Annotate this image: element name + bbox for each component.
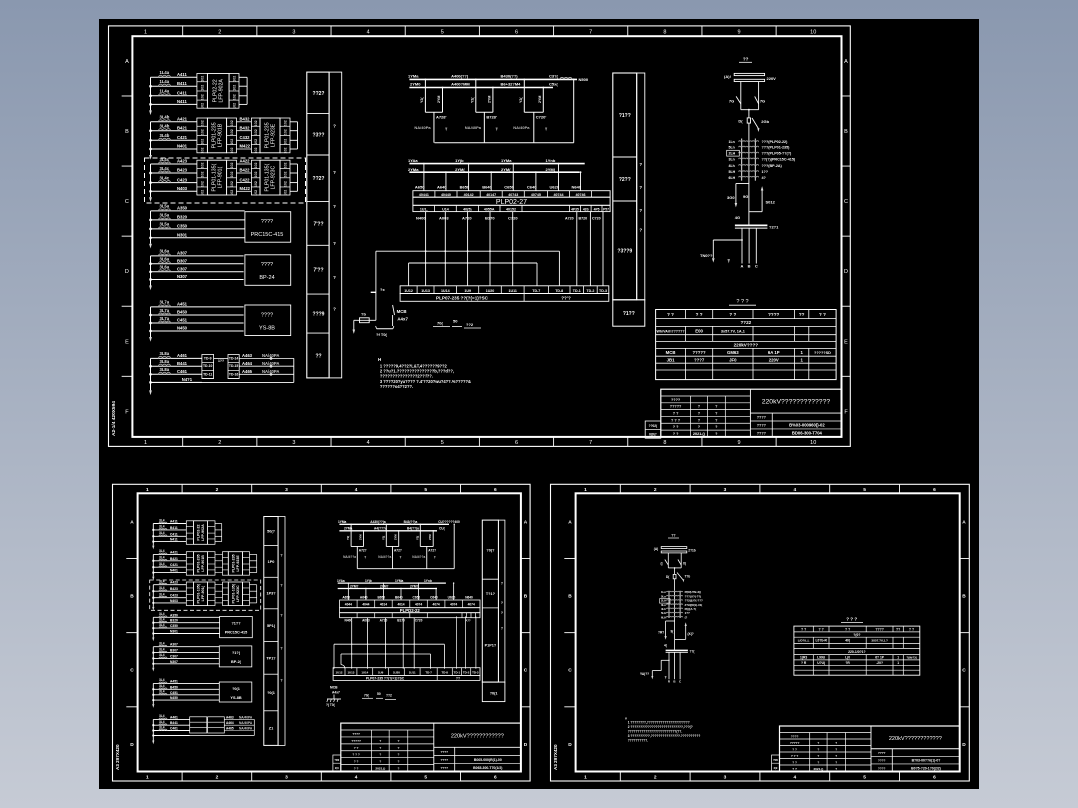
svg-text:102: 102 <box>230 129 234 135</box>
svg-text:TD-11: TD-11 <box>203 372 212 376</box>
svg-text:B430(??): B430(??) <box>501 74 519 79</box>
svg-text:N400: N400 <box>345 619 353 623</box>
svg-text:TD-8: TD-8 <box>555 289 563 293</box>
svg-text:LFP-923E: LFP-923E <box>236 555 240 572</box>
svg-text:A728': A728' <box>436 114 447 119</box>
svg-text:4: 4 <box>355 774 358 780</box>
svg-text:?: ? <box>280 679 282 683</box>
svg-text:E: E <box>844 339 848 345</box>
svg-text:1U20: 1U20 <box>393 671 400 675</box>
svg-text:? ?: ? ? <box>729 312 736 317</box>
svg-text:1U11: 1U11 <box>409 671 416 675</box>
svg-text:P1P1?: P1P1? <box>485 644 497 648</box>
svg-text:B411: B411 <box>170 526 178 530</box>
svg-text:CU(: CU( <box>439 526 446 530</box>
svg-text:43S: 43S <box>583 207 590 211</box>
svg-text:1(R3: 1(R3 <box>800 656 807 660</box>
svg-text:50(?: 50(? <box>267 530 275 534</box>
svg-text:3x57.7V, 1A,1: 3x57.7V, 1A,1 <box>721 329 745 333</box>
svg-text:TD-15: TD-15 <box>229 364 239 368</box>
svg-text:? ?: ? ? <box>792 767 797 771</box>
svg-text:6: 6 <box>515 29 518 35</box>
svg-text:2(9: 2(9 <box>335 766 339 770</box>
svg-text:1Yjb: 1Yjb <box>365 579 372 583</box>
svg-text:N400: N400 <box>416 216 426 221</box>
svg-text:BP-24: BP-24 <box>259 275 274 281</box>
svg-text:1L4a: 1L4a <box>160 89 170 94</box>
svg-text:1YMa: 1YMa <box>338 520 347 524</box>
svg-text:TD-7: TD-7 <box>425 671 432 675</box>
svg-text:? ?: ? ? <box>354 746 359 750</box>
svg-text:?0(1: ?0(1 <box>232 687 240 691</box>
svg-text:P57: P57 <box>603 207 609 211</box>
svg-text:A400(??): A400(??) <box>451 74 469 79</box>
svg-text:A: A <box>524 519 528 525</box>
svg-text:L0?b-R: L0?b-R <box>815 639 827 643</box>
svg-text:?: ? <box>639 185 642 190</box>
svg-text:A422: A422 <box>240 159 251 164</box>
svg-text:102: 102 <box>233 85 237 91</box>
svg-text:40743: 40743 <box>508 193 518 197</box>
svg-text:?: ? <box>639 227 642 232</box>
svg-text:A4x7: A4x7 <box>397 317 408 322</box>
svg-text:? ?: ? ? <box>801 627 806 631</box>
svg-text:PLP01-135(: PLP01-135( <box>197 583 201 603</box>
svg-text:?3??9: ?3??9 <box>617 248 632 254</box>
svg-text:4P5: 4P5 <box>594 207 600 211</box>
svg-text:102: 102 <box>284 120 288 126</box>
svg-text:1P0: 1P0 <box>268 560 275 564</box>
svg-text:B450: B450 <box>170 685 178 689</box>
svg-text:B: B <box>844 129 848 135</box>
svg-text:1U9: 1U9 <box>378 671 384 675</box>
svg-text:E00: E00 <box>695 328 703 333</box>
svg-text:1??: 1?? <box>218 359 224 363</box>
svg-text:A463: A463 <box>242 353 253 358</box>
svg-text:2YM: 2YM <box>359 534 363 540</box>
svg-text:3L4b: 3L4b <box>160 115 170 120</box>
svg-text:4014: 4014 <box>397 603 404 607</box>
svg-text:?: ? <box>379 753 381 757</box>
svg-text:??02(: ??02( <box>649 424 658 428</box>
svg-text:?: ? <box>333 170 336 175</box>
svg-text:1U12: 1U12 <box>404 289 413 293</box>
svg-text:1Ynb: 1Ynb <box>546 158 556 163</box>
svg-text:C650: C650 <box>504 184 514 189</box>
svg-text:A003: A003 <box>362 619 370 623</box>
svg-text:??2: ??2 <box>466 322 474 327</box>
svg-text:TD-9: TD-9 <box>204 356 212 360</box>
svg-text:5: 5 <box>863 774 866 780</box>
svg-text:?(9b?3(: ?(9b?3( <box>906 656 916 660</box>
svg-text:1: 1 <box>584 774 587 780</box>
svg-text:????: ???? <box>261 313 273 319</box>
svg-text:2: 2 <box>654 487 657 493</box>
svg-text:N640: N640 <box>572 184 582 189</box>
svg-text:2YM(: 2YM( <box>546 167 556 172</box>
svg-text:102: 102 <box>284 172 288 178</box>
svg-text:LFP-901B: LFP-901B <box>201 555 205 572</box>
svg-text:102: 102 <box>230 139 234 145</box>
svg-text:A3 297X420: A3 297X420 <box>553 744 558 770</box>
svg-text:A350: A350 <box>177 206 188 211</box>
svg-text:?: ? <box>379 746 381 750</box>
svg-text:220kV????????????: 220kV???????????? <box>451 734 504 740</box>
svg-text:A: A <box>741 264 744 269</box>
svg-text:N411: N411 <box>170 538 178 542</box>
svg-text:1: 1 <box>146 487 149 493</box>
svg-text:JB1: JB1 <box>667 357 675 362</box>
svg-text:? ? ?: ? ? ? <box>736 299 748 305</box>
svg-text:MCB: MCB <box>330 686 338 690</box>
svg-text:6: 6 <box>933 774 936 780</box>
svg-text:??'?: ??'? <box>561 296 571 301</box>
svg-text:B?03-00??6(1)-0?: B?03-00??6(1)-0? <box>912 759 941 763</box>
svg-text:C3?(: C3?( <box>549 74 559 79</box>
svg-text:3L4c: 3L4c <box>160 175 170 180</box>
svg-text:PLP01-235: PLP01-235 <box>197 554 201 572</box>
svg-text:3L6a: 3L6a <box>160 265 170 270</box>
svg-text:N403: N403 <box>177 186 188 191</box>
svg-text:TD-10: TD-10 <box>203 364 213 368</box>
svg-text:0(9)?: 0(9)? <box>649 433 657 437</box>
svg-text:220V: 220V <box>769 357 779 362</box>
svg-text:1U1,: 1U1, <box>420 207 428 211</box>
svg-text:B: B <box>130 594 134 600</box>
svg-text:N450: N450 <box>170 696 178 700</box>
svg-text:A451: A451 <box>170 679 178 683</box>
svg-text:3L6a: 3L6a <box>160 257 170 262</box>
svg-text:3L4: 3L4 <box>159 653 165 657</box>
svg-text:102: 102 <box>284 181 288 187</box>
svg-text:?( T0(: ?( T0( <box>326 703 336 707</box>
svg-text:? R: ? R <box>801 661 807 665</box>
svg-text:5: 5 <box>441 29 444 35</box>
svg-text:B421: B421 <box>170 557 178 561</box>
svg-text:L(0: L(0 <box>845 656 850 660</box>
svg-text:A: A <box>844 59 848 65</box>
svg-text:PLP01-235: PLP01-235 <box>231 554 235 572</box>
svg-text:B: B <box>524 594 528 600</box>
svg-text:C411: C411 <box>177 91 187 96</box>
svg-text:?: ? <box>639 208 642 213</box>
svg-text:5LH: 5LH <box>729 170 736 174</box>
svg-text:?: ? <box>501 611 503 615</box>
svg-text:3: 3 <box>292 440 295 446</box>
svg-text:?0(?: ?0(? <box>486 548 495 552</box>
svg-text:1??: 1?? <box>762 170 769 174</box>
svg-text:?: ? <box>379 739 381 743</box>
svg-text:4Lh: 4Lh <box>729 164 735 168</box>
svg-text:1: 1 <box>144 29 147 35</box>
svg-text:B: B <box>125 129 129 135</box>
svg-text:????: ???? <box>757 424 767 428</box>
svg-text:5: 5 <box>441 440 444 446</box>
svg-text:A350: A350 <box>170 613 178 617</box>
svg-text:?f T0(: ?f T0( <box>376 332 388 337</box>
svg-text:4014: 4014 <box>380 603 387 607</box>
svg-text:3L4: 3L4 <box>159 549 165 553</box>
svg-text:2LH: 2LH <box>729 152 736 156</box>
svg-text:?: ? <box>333 307 336 312</box>
svg-text:5P1(: 5P1( <box>267 624 276 628</box>
svg-text:?: ? <box>333 124 336 129</box>
svg-text:C461: C461 <box>177 369 188 374</box>
svg-text:C: C <box>844 199 848 205</box>
svg-text:NA/40Pa: NA/40Pa <box>513 125 530 130</box>
svg-text:5: 5 <box>424 487 427 493</box>
svg-text:NA/40PA: NA/40PA <box>239 715 253 719</box>
svg-text:U620: U620 <box>448 595 456 599</box>
svg-text:3L4: 3L4 <box>159 725 165 729</box>
svg-text:4: 4 <box>793 774 796 780</box>
svg-text:C: C <box>568 668 572 674</box>
svg-text:2: 2 <box>218 29 221 35</box>
svg-text:? ?: ? ? <box>354 767 359 771</box>
svg-text:? ?: ? ? <box>909 627 914 631</box>
svg-text:?: ? <box>817 741 819 745</box>
svg-text:3L4: 3L4 <box>159 593 165 597</box>
svg-text:C422: C422 <box>240 177 251 182</box>
svg-text:T?1?: T?1? <box>486 592 496 596</box>
svg-text:???7: ???7 <box>694 357 705 362</box>
svg-text:10: 10 <box>810 440 816 446</box>
svg-text:C650: C650 <box>413 595 421 599</box>
svg-text:3L4: 3L4 <box>159 612 165 616</box>
svg-text:Y2(: Y2( <box>470 97 474 103</box>
svg-text:TD-3: TD-3 <box>599 289 607 293</box>
svg-text:????: ???? <box>352 732 360 736</box>
svg-text:B065-300-T70(1/2): B065-300-T70(1/2) <box>473 766 502 770</box>
svg-text:4044: 4044 <box>345 603 352 607</box>
svg-text:C451: C451 <box>177 318 188 323</box>
svg-text:3L5a: 3L5a <box>160 222 170 227</box>
svg-text:40441: 40441 <box>419 193 429 197</box>
svg-text:D: D <box>125 269 129 275</box>
svg-text:6: 6 <box>494 774 497 780</box>
svg-text:6LH: 6LH <box>661 615 666 619</box>
svg-text:9: 9 <box>737 440 740 446</box>
svg-text:B650: B650 <box>377 595 385 599</box>
svg-text:N4?1: N4?1 <box>182 377 193 382</box>
svg-text:v: v <box>625 717 627 721</box>
svg-text:Z1: Z1 <box>269 727 273 731</box>
svg-text:102: 102 <box>230 172 234 178</box>
svg-text:8: 8 <box>663 29 666 35</box>
svg-text:1YAa: 1YAa <box>408 158 418 163</box>
svg-text:?x: ?x <box>380 287 385 292</box>
svg-text:?: ? <box>817 747 819 751</box>
svg-text:?: ? <box>280 554 282 558</box>
svg-text:U14: U14 <box>442 207 449 211</box>
svg-text:N500: N500 <box>579 77 589 82</box>
svg-text:3L4: 3L4 <box>159 525 165 529</box>
svg-text:1U11: 1U11 <box>508 289 516 293</box>
svg-text:1U20: 1U20 <box>486 289 495 293</box>
svg-text:102: 102 <box>284 139 288 145</box>
svg-text:??2?: ??2? <box>313 176 325 182</box>
svg-text:C640: C640 <box>527 184 537 189</box>
svg-text:???9: ???9 <box>313 312 325 318</box>
svg-text:2Gb: 2Gb <box>761 119 769 124</box>
svg-text:C423: C423 <box>170 594 178 598</box>
svg-text:A2-1/4 420X594: A2-1/4 420X594 <box>111 401 117 436</box>
svg-text:Wh/VArh??????: Wh/VArh?????? <box>657 329 685 333</box>
svg-text:4: 4 <box>367 29 370 35</box>
svg-text:3L5a: 3L5a <box>160 204 170 209</box>
svg-text:YA(??: YA(?? <box>640 672 649 676</box>
svg-text:1Ynb: 1Ynb <box>424 579 432 583</box>
svg-text:A: A <box>130 519 134 525</box>
svg-text:70(: 70( <box>437 321 443 326</box>
svg-text:??(?)(PRC15C-415): ??(?)(PRC15C-415) <box>762 158 796 162</box>
svg-text:NA/40Pa: NA/40Pa <box>465 125 482 130</box>
svg-text:2?1b: 2?1b <box>688 549 695 553</box>
svg-text:A4(???a: A4(???a <box>374 526 387 530</box>
svg-text:6LH: 6LH <box>729 176 736 180</box>
svg-text:???(BP-2A): ???(BP-2A) <box>762 164 783 168</box>
svg-text:? ?: ? ? <box>673 425 679 429</box>
svg-text:PLP07-235 ??(?(=1)?SC: PLP07-235 ??(?(=1)?SC <box>366 677 405 681</box>
svg-text:A461: A461 <box>170 715 178 719</box>
svg-text:2021.(): 2021.() <box>375 767 385 771</box>
svg-text:220kV????????????: 220kV???????????? <box>889 736 942 742</box>
svg-text:4?: 4? <box>762 176 767 180</box>
svg-text:TD-2: TD-2 <box>463 671 470 675</box>
svg-text:7G: 7G <box>729 99 734 104</box>
svg-text:B720: B720 <box>579 217 588 221</box>
svg-text:A307: A307 <box>177 251 188 256</box>
svg-text:? ?: ? ? <box>667 312 674 317</box>
svg-text:??: ?? <box>743 57 749 62</box>
svg-text:2YM: 2YM <box>437 96 441 103</box>
svg-text:1P3?: 1P3? <box>266 592 276 596</box>
svg-text:?: ? <box>333 275 336 280</box>
svg-text:? ?: ? ? <box>845 627 850 631</box>
svg-text:?1??: ?1?? <box>623 311 635 317</box>
svg-text:A423: A423 <box>170 581 178 585</box>
svg-text:102: 102 <box>284 148 288 154</box>
svg-text:6: 6 <box>933 487 936 493</box>
svg-text:NA/4??a: NA/4??a <box>412 555 425 559</box>
svg-text:102: 102 <box>201 172 205 178</box>
svg-text:? ?: ? ? <box>792 760 797 764</box>
svg-text:N401: N401 <box>177 144 188 149</box>
svg-text:?b: ?b <box>361 312 366 317</box>
svg-text:D: D <box>524 742 528 748</box>
svg-text:PRC15C-415: PRC15C-415 <box>251 232 284 238</box>
svg-text:?: ? <box>835 760 837 764</box>
svg-text:??: ?? <box>799 312 805 317</box>
svg-text:3L4: 3L4 <box>159 684 165 688</box>
svg-text:3L4: 3L4 <box>159 586 165 590</box>
svg-text:D: D <box>130 742 134 748</box>
svg-text:?: ? <box>398 753 400 757</box>
svg-text:YS-8B: YS-8B <box>259 326 275 332</box>
svg-text:102: 102 <box>201 139 205 145</box>
svg-text:B728': B728' <box>486 114 497 119</box>
svg-text:? ? ?: ? ? ? <box>846 617 857 622</box>
svg-text:TD-2: TD-2 <box>586 289 594 293</box>
svg-text:1U14: 1U14 <box>441 289 450 293</box>
svg-text:BP-2(: BP-2( <box>231 660 242 664</box>
svg-text:B%03-000960()-02: B%03-000960()-02 <box>789 423 825 428</box>
svg-text:?????????????????????????(??.: ?????????????????????????(??. <box>628 730 683 734</box>
svg-text:2: 2 <box>216 774 219 780</box>
svg-text:1U13: 1U13 <box>421 289 430 293</box>
svg-text:102: 102 <box>284 163 288 169</box>
svg-text:A451: A451 <box>177 302 188 307</box>
svg-text:?????SD: ?????SD <box>814 351 831 355</box>
svg-text:? ?: ? ? <box>819 312 826 317</box>
svg-text:?: ? <box>398 767 400 771</box>
svg-text:102: 102 <box>254 139 258 145</box>
svg-text:1U14: 1U14 <box>361 671 368 675</box>
svg-text:C307: C307 <box>177 267 188 272</box>
svg-text:102: 102 <box>201 76 205 82</box>
svg-text:B: B <box>748 264 751 269</box>
svg-text:C350: C350 <box>170 624 178 628</box>
svg-text:A650: A650 <box>415 184 425 189</box>
svg-text:TD-7: TD-7 <box>532 289 540 293</box>
svg-text:3X57.7V,1.?: 3X57.7V,1.? <box>871 639 888 643</box>
svg-text:A430(??)a: A430(??)a <box>370 520 386 524</box>
svg-text:M422: M422 <box>240 186 251 191</box>
svg-text:N301: N301 <box>170 630 178 634</box>
svg-text:NA/40PA: NA/40PA <box>239 727 253 731</box>
svg-text:2YM?: 2YM? <box>410 584 419 588</box>
svg-text:LFP-923E: LFP-923E <box>271 123 277 147</box>
svg-text:A72?: A72? <box>394 549 402 553</box>
svg-text:B421: B421 <box>177 125 188 130</box>
svg-text:2YM: 2YM <box>538 96 542 103</box>
svg-text:2: 2 <box>218 440 221 446</box>
svg-text:D: D <box>844 269 848 275</box>
svg-text:??: ?? <box>315 354 321 360</box>
svg-text:A3 297X420: A3 297X420 <box>115 744 120 770</box>
svg-text:220kV?????????????: 220kV????????????? <box>762 399 831 406</box>
svg-text:2YM(: 2YM( <box>455 167 465 172</box>
svg-text:102: 102 <box>230 163 234 169</box>
svg-text:(X(?: (X(? <box>688 632 694 636</box>
svg-text:U?U(: U?U( <box>817 661 826 665</box>
svg-text:?: ? <box>280 647 282 651</box>
svg-text:C451: C451 <box>170 691 178 695</box>
svg-text:B320: B320 <box>170 619 178 623</box>
svg-text:102: 102 <box>284 129 288 135</box>
svg-text:102: 102 <box>201 85 205 91</box>
svg-text:PLP02-22: PLP02-22 <box>197 524 201 540</box>
svg-text:A421: A421 <box>177 117 188 122</box>
svg-text:3L4: 3L4 <box>159 618 165 622</box>
svg-text:? ?: ? ? <box>792 747 797 751</box>
svg-text:2: 2 <box>216 487 219 493</box>
svg-text:C421: C421 <box>170 563 178 567</box>
svg-text:10: 10 <box>810 29 816 35</box>
svg-text:3L7a: 3L7a <box>160 316 170 321</box>
svg-text:H: H <box>378 357 381 362</box>
svg-text:40745: 40745 <box>531 193 541 197</box>
svg-text:102: 102 <box>201 120 205 126</box>
svg-text:3L7a: 3L7a <box>160 300 170 305</box>
svg-text:102: 102 <box>201 94 205 100</box>
svg-text:40744: 40744 <box>554 193 564 197</box>
svg-text:3L7a: 3L7a <box>160 308 170 313</box>
svg-text:102: 102 <box>233 94 237 100</box>
svg-text:??22: ??22 <box>740 320 751 325</box>
svg-text:C720: C720 <box>415 619 423 623</box>
svg-text:1: 1 <box>144 440 147 446</box>
